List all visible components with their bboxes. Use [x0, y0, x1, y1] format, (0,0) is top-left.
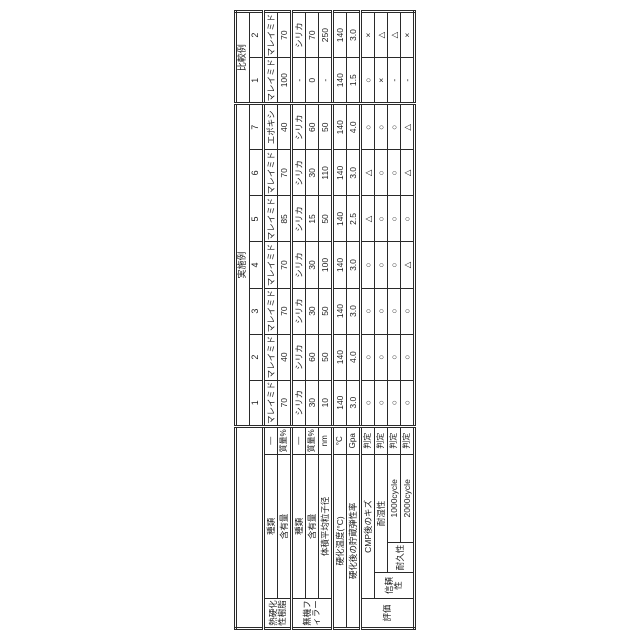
value-cell: ○ [388, 334, 401, 380]
value-cell: シリカ [292, 104, 306, 150]
value-cell: △ [361, 196, 375, 242]
value-cell: 3.0 [347, 150, 361, 196]
rotated-table-wrapper: 実施例比較例123456712 熱硬化性樹脂種類—マレイミドマレイミドマレイミド… [234, 10, 414, 630]
value-cell: ○ [361, 104, 375, 150]
value-cell: ○ [388, 150, 401, 196]
value-cell: 4.0 [347, 104, 361, 150]
value-cell: 40 [278, 334, 292, 380]
value-cell: ○ [361, 58, 375, 104]
value-cell: ○ [375, 104, 388, 150]
value-cell: 140 [333, 12, 347, 58]
value-cell: 30 [306, 380, 319, 426]
unit-cell: 判定 [375, 426, 388, 454]
value-cell: シリカ [292, 380, 306, 426]
value-cell: 15 [306, 196, 319, 242]
value-cell: ○ [388, 242, 401, 288]
value-cell: マレイミド [264, 334, 278, 380]
column-number-cell: 2 [250, 334, 264, 380]
row-label-cell: 2000cycle [401, 454, 415, 542]
value-cell: マレイミド [264, 12, 278, 58]
value-cell: マレイミド [264, 242, 278, 288]
value-cell: ○ [401, 334, 415, 380]
group-label-cell: 熱硬化性樹脂 [264, 598, 292, 628]
sub-sub-group-label-cell: 耐久性 [388, 542, 415, 572]
value-cell: 3.0 [347, 288, 361, 334]
value-cell: 30 [306, 242, 319, 288]
unit-cell: nm [319, 426, 333, 454]
value-cell: マレイミド [264, 150, 278, 196]
value-cell: ○ [375, 334, 388, 380]
value-cell: 140 [333, 104, 347, 150]
patent-data-table: 実施例比較例123456712 熱硬化性樹脂種類—マレイミドマレイミドマレイミド… [234, 10, 416, 630]
value-cell: ○ [401, 380, 415, 426]
value-cell: - [319, 58, 333, 104]
value-cell: 100 [278, 58, 292, 104]
unit-cell: °C [333, 426, 347, 454]
value-cell: 70 [306, 12, 319, 58]
unit-cell: 判定 [361, 426, 375, 454]
table-body: 熱硬化性樹脂種類—マレイミドマレイミドマレイミドマレイミドマレイミドマレイミドエ… [264, 12, 415, 629]
column-number-cell: 1 [250, 58, 264, 104]
column-number-cell: 3 [250, 288, 264, 334]
column-number-cell: 1 [250, 380, 264, 426]
value-cell: 50 [319, 334, 333, 380]
value-cell: マレイミド [264, 288, 278, 334]
row-label-cell: 体積平均粒子径 [319, 454, 333, 598]
value-cell: 70 [278, 288, 292, 334]
value-cell: × [375, 58, 388, 104]
row-label-cell: 含有量 [278, 454, 292, 598]
value-cell: 140 [333, 380, 347, 426]
value-cell: 0 [306, 58, 319, 104]
value-cell: マレイミド [264, 58, 278, 104]
value-cell: - [401, 58, 415, 104]
value-cell: ○ [401, 288, 415, 334]
value-cell: ○ [375, 242, 388, 288]
value-cell: シリカ [292, 334, 306, 380]
page-background: 実施例比較例123456712 熱硬化性樹脂種類—マレイミドマレイミドマレイミド… [0, 0, 640, 640]
unit-cell: 質量% [278, 426, 292, 454]
value-cell: マレイミド [264, 380, 278, 426]
value-cell: シリカ [292, 288, 306, 334]
value-cell: 110 [319, 150, 333, 196]
value-cell: 100 [319, 242, 333, 288]
value-cell: 60 [306, 334, 319, 380]
value-cell: 70 [278, 12, 292, 58]
value-cell: シリカ [292, 12, 306, 58]
value-cell: ○ [375, 288, 388, 334]
unit-cell: Gpa [347, 426, 361, 454]
value-cell: ○ [375, 380, 388, 426]
value-cell: 140 [333, 242, 347, 288]
value-cell: - [388, 58, 401, 104]
value-cell: × [401, 12, 415, 58]
value-cell: 10 [319, 380, 333, 426]
value-cell: △ [361, 150, 375, 196]
table-head: 実施例比較例123456712 [236, 12, 264, 629]
value-cell: ○ [388, 104, 401, 150]
value-cell: 40 [278, 104, 292, 150]
value-cell: 85 [278, 196, 292, 242]
row-label-cell: 耐湿性 [375, 454, 388, 572]
row-label-cell: 種類 [292, 454, 306, 598]
value-cell: - [292, 58, 306, 104]
value-cell: ○ [388, 288, 401, 334]
row-label-cell: 硬化温度(°C) [333, 454, 347, 628]
value-cell: シリカ [292, 242, 306, 288]
unit-cell: 判定 [388, 426, 401, 454]
comparative-group-header: 比較例 [236, 12, 250, 104]
value-cell: ○ [361, 380, 375, 426]
value-cell: ○ [375, 196, 388, 242]
group-label-cell: 無機フィラー [292, 598, 333, 628]
value-cell: 70 [278, 242, 292, 288]
value-cell: 3.0 [347, 12, 361, 58]
value-cell: ○ [361, 334, 375, 380]
group-label-cell: 評価 [361, 598, 415, 628]
row-label-cell: 含有量 [306, 454, 319, 598]
value-cell: 50 [319, 288, 333, 334]
value-cell: 30 [306, 288, 319, 334]
sub-group-label-cell: 信頼性 [375, 572, 415, 598]
value-cell: △ [401, 150, 415, 196]
value-cell: 140 [333, 58, 347, 104]
value-cell: 140 [333, 288, 347, 334]
value-cell: シリカ [292, 196, 306, 242]
value-cell: エポキシ [264, 104, 278, 150]
value-cell: △ [401, 242, 415, 288]
value-cell: ○ [375, 150, 388, 196]
value-cell: ○ [388, 380, 401, 426]
value-cell: 250 [319, 12, 333, 58]
column-number-cell: 2 [250, 12, 264, 58]
unit-cell: — [292, 426, 306, 454]
column-number-cell: 7 [250, 104, 264, 150]
unit-cell: 判定 [401, 426, 415, 454]
value-cell: 30 [306, 150, 319, 196]
corner-cell [236, 426, 264, 628]
unit-cell: 質量% [306, 426, 319, 454]
value-cell: 60 [306, 104, 319, 150]
value-cell: 140 [333, 196, 347, 242]
value-cell: △ [401, 104, 415, 150]
value-cell: 50 [319, 104, 333, 150]
value-cell: 140 [333, 334, 347, 380]
value-cell: ○ [361, 288, 375, 334]
unit-cell: — [264, 426, 278, 454]
value-cell: マレイミド [264, 196, 278, 242]
value-cell: 3.0 [347, 242, 361, 288]
value-cell: ○ [401, 196, 415, 242]
value-cell: 1.5 [347, 58, 361, 104]
row-label-cell: 1000cycle [388, 454, 401, 542]
row-label-cell: CMP後のキズ [361, 454, 375, 598]
column-number-cell: 5 [250, 196, 264, 242]
value-cell: 140 [333, 150, 347, 196]
value-cell: 50 [319, 196, 333, 242]
value-cell: △ [388, 12, 401, 58]
value-cell: ○ [361, 242, 375, 288]
column-number-cell: 4 [250, 242, 264, 288]
value-cell: 3.0 [347, 380, 361, 426]
value-cell: 2.5 [347, 196, 361, 242]
row-label-cell: 硬化後の貯蔵弾性率 [347, 454, 361, 628]
value-cell: 70 [278, 380, 292, 426]
value-cell: 4.0 [347, 334, 361, 380]
value-cell: × [361, 12, 375, 58]
column-number-cell: 6 [250, 150, 264, 196]
value-cell: ○ [388, 196, 401, 242]
row-label-cell: 種類 [264, 454, 278, 598]
value-cell: シリカ [292, 150, 306, 196]
examples-group-header: 実施例 [236, 104, 250, 426]
value-cell: △ [375, 12, 388, 58]
value-cell: 70 [278, 150, 292, 196]
